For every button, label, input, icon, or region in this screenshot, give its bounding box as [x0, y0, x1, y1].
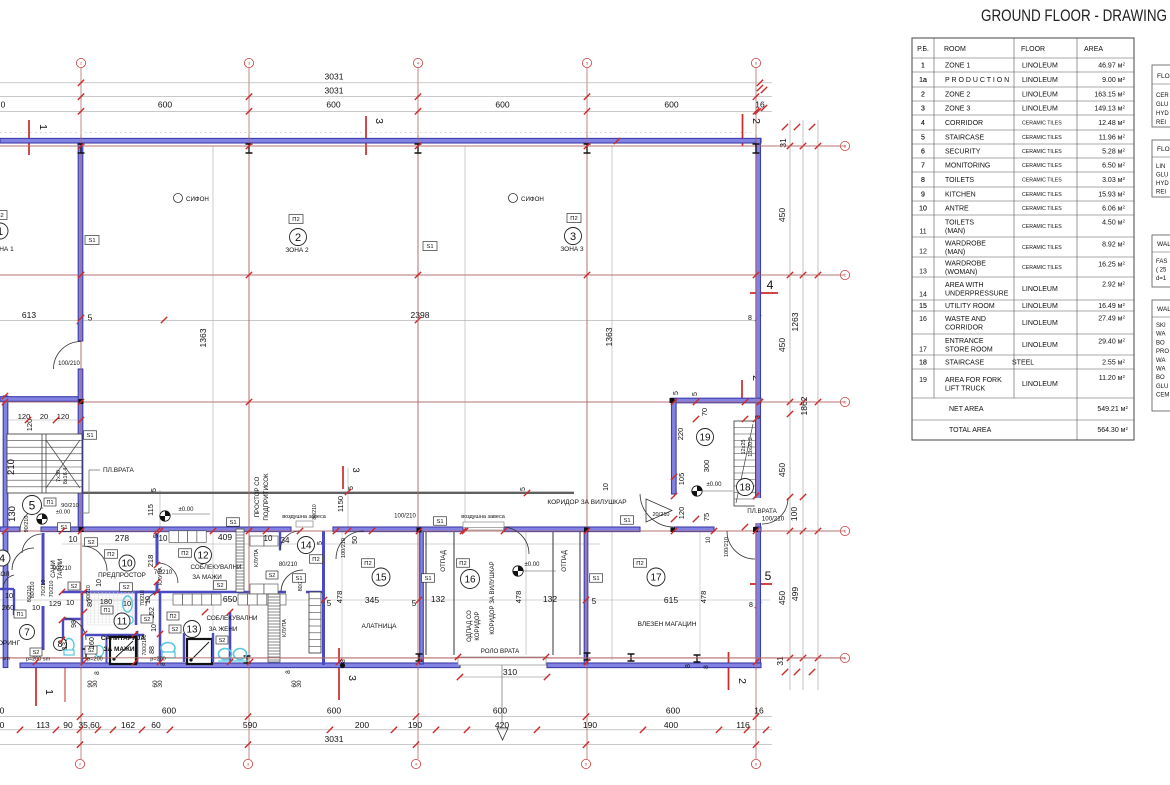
svg-text:100: 100	[789, 507, 799, 521]
svg-text:11.96 м2: 11.96 м2	[1099, 134, 1126, 142]
svg-text:LINOLEUM: LINOLEUM	[1022, 63, 1058, 70]
svg-text:П2: П2	[459, 561, 466, 567]
svg-text:3031: 3031	[325, 734, 344, 744]
svg-text:210: 210	[6, 459, 17, 475]
svg-text:46.97 м2: 46.97 м2	[1098, 62, 1125, 70]
svg-text:16.25 м2: 16.25 м2	[1098, 261, 1125, 269]
svg-text:S1: S1	[623, 518, 630, 524]
svg-text:ВЛЕЗЕН МАГАЦИН: ВЛЕЗЕН МАГАЦИН	[638, 621, 697, 628]
svg-text:478: 478	[335, 591, 344, 604]
svg-text:3031: 3031	[325, 72, 344, 82]
svg-text:1363: 1363	[198, 328, 208, 347]
svg-text:13x20.2: 13x20.2	[748, 437, 754, 457]
svg-text:8.92 м2: 8.92 м2	[1102, 241, 1125, 249]
svg-text:ZONE 3: ZONE 3	[945, 106, 970, 113]
svg-text:70/210: 70/210	[49, 581, 55, 598]
svg-text:S2: S2	[269, 573, 276, 579]
svg-text:5: 5	[412, 599, 417, 608]
svg-text:19: 19	[919, 377, 927, 384]
svg-text:SKI: SKI	[1156, 323, 1166, 329]
svg-text:80/210: 80/210	[312, 504, 318, 520]
svg-text:ПРЕДПРОСТОР: ПРЕДПРОСТОР	[98, 572, 146, 579]
svg-text:8: 8	[94, 671, 101, 675]
svg-text:П2: П2	[0, 213, 4, 219]
svg-text:5: 5	[327, 599, 332, 608]
svg-text:8: 8	[921, 177, 925, 184]
svg-text:12: 12	[919, 249, 927, 256]
svg-text:LINOLEUM: LINOLEUM	[1022, 286, 1058, 293]
svg-text:СОБЛЕКУВАЛНИ: СОБЛЕКУВАЛНИ	[190, 564, 242, 571]
svg-text:3: 3	[570, 231, 576, 243]
svg-text:90/210: 90/210	[86, 585, 92, 601]
svg-text:S2: S2	[216, 583, 223, 589]
svg-text:±0.00: ±0.00	[56, 510, 70, 516]
svg-text:ЗОНА 2: ЗОНА 2	[285, 247, 309, 254]
svg-text:HYD: HYD	[1156, 181, 1169, 187]
svg-text:±0.00: ±0.00	[179, 507, 195, 513]
svg-text:1: 1	[37, 124, 49, 130]
svg-text:CERAMIC TILES: CERAMIC TILES	[1022, 121, 1062, 127]
svg-text:10: 10	[264, 534, 273, 543]
svg-text:0: 0	[0, 706, 5, 716]
svg-text:GLU: GLU	[1156, 173, 1168, 179]
svg-text:10: 10	[603, 483, 610, 491]
svg-text:П2: П2	[107, 552, 114, 558]
svg-text:90/210: 90/210	[61, 503, 79, 509]
svg-text:600: 600	[666, 706, 680, 716]
svg-text:3: 3	[373, 118, 385, 124]
svg-text:34: 34	[281, 536, 290, 545]
svg-text:18: 18	[919, 360, 927, 367]
svg-text:КЛУПА: КЛУПА	[282, 619, 288, 637]
svg-text:СОБЛЕКУВАЛНИ: СОБЛЕКУВАЛНИ	[206, 615, 258, 622]
svg-text:13: 13	[919, 269, 927, 276]
svg-text:КЛУПА: КЛУПА	[158, 567, 164, 585]
svg-text:12.48 м2: 12.48 м2	[1098, 119, 1125, 127]
svg-text:409: 409	[218, 532, 232, 542]
svg-text:10: 10	[121, 559, 133, 570]
svg-text:CORRIDOR: CORRIDOR	[945, 325, 983, 332]
svg-text:10: 10	[145, 596, 152, 604]
svg-text:14: 14	[919, 292, 927, 299]
svg-text:6.50 м2: 6.50 м2	[1102, 162, 1125, 170]
svg-text:129: 129	[49, 599, 62, 608]
svg-text:WA: WA	[1156, 367, 1165, 373]
svg-text:CEM: CEM	[1156, 393, 1169, 399]
svg-text:10: 10	[32, 603, 40, 612]
svg-text:132: 132	[543, 594, 557, 604]
svg-text:11: 11	[117, 617, 128, 628]
svg-text:130: 130	[7, 506, 18, 522]
svg-text:5: 5	[29, 498, 36, 512]
svg-text:ОТПАД: ОТПАД	[561, 549, 568, 571]
svg-text:113: 113	[36, 720, 50, 730]
svg-text:180: 180	[100, 597, 113, 606]
svg-text:650: 650	[223, 594, 237, 604]
svg-text:S2: S2	[122, 585, 129, 591]
svg-text:ПЛ.ВРАТА: ПЛ.ВРАТА	[103, 467, 135, 474]
svg-text:30: 30	[157, 680, 164, 688]
svg-text:S1: S1	[436, 519, 443, 525]
svg-text:7: 7	[921, 163, 925, 170]
svg-text:600: 600	[158, 100, 172, 110]
svg-text:615: 615	[664, 595, 678, 605]
svg-text:300: 300	[702, 460, 711, 473]
svg-text:2: 2	[736, 678, 748, 684]
svg-text:ЗА МАЖИ: ЗА МАЖИ	[192, 574, 222, 581]
svg-text:2: 2	[750, 118, 762, 124]
svg-text:РОЛО ВРАТА: РОЛО ВРАТА	[481, 648, 520, 655]
svg-text:20/210: 20/210	[652, 512, 669, 518]
svg-text:FLOOR: FLOOR	[1021, 46, 1045, 53]
svg-text:ROOM: ROOM	[944, 46, 966, 53]
svg-text:CER: CER	[1156, 93, 1169, 99]
svg-text:AREA FOR FORK: AREA FOR FORK	[945, 377, 1002, 384]
svg-text:29.40 м2: 29.40 м2	[1098, 338, 1125, 346]
svg-text:П2: П2	[636, 561, 643, 567]
svg-text:АЛАТНИЦА: АЛАТНИЦА	[361, 623, 397, 630]
svg-text:KITCHEN: KITCHEN	[945, 192, 976, 199]
svg-text:P R O D U C T I O N: P R O D U C T I O N	[945, 77, 1009, 84]
svg-text:190: 190	[583, 720, 597, 730]
svg-text:CERAMIC TILES: CERAMIC TILES	[1022, 265, 1062, 271]
svg-text:160: 160	[89, 637, 96, 649]
svg-text:TOILETS: TOILETS	[945, 177, 974, 184]
svg-text:2: 2	[921, 92, 925, 99]
svg-text:600: 600	[327, 706, 341, 716]
svg-text:345: 345	[365, 595, 379, 605]
svg-text:5: 5	[151, 488, 158, 492]
svg-text:ТАРИИ: ТАРИИ	[57, 559, 64, 580]
svg-text:88: 88	[149, 646, 156, 654]
svg-text:9.00 м2: 9.00 м2	[1102, 76, 1125, 84]
svg-text:600: 600	[493, 706, 507, 716]
svg-text:478: 478	[699, 591, 708, 604]
svg-text:1: 1	[0, 226, 3, 238]
svg-text:WARDROBE: WARDROBE	[945, 261, 986, 268]
svg-text:WA: WA	[1156, 358, 1165, 364]
svg-text:П2: П2	[570, 216, 577, 222]
svg-text:5: 5	[692, 392, 699, 396]
svg-text:9: 9	[921, 192, 925, 199]
svg-text:5: 5	[592, 597, 597, 606]
svg-text:CORRIDOR: CORRIDOR	[945, 120, 983, 127]
svg-text:8: 8	[749, 602, 753, 609]
svg-text:LIN: LIN	[1156, 164, 1165, 170]
svg-text:16: 16	[755, 100, 765, 110]
svg-text:600: 600	[162, 706, 176, 716]
svg-text:ЗА МАЖИ: ЗА МАЖИ	[103, 646, 135, 653]
svg-text:UTILITY ROOM: UTILITY ROOM	[945, 303, 995, 310]
svg-text:GLU: GLU	[1156, 102, 1168, 108]
svg-text:132: 132	[431, 594, 445, 604]
svg-text:FLO: FLO	[1157, 146, 1170, 153]
svg-text:10: 10	[66, 598, 74, 607]
svg-text:S2: S2	[33, 650, 40, 656]
svg-text:3.03 м2: 3.03 м2	[1102, 176, 1125, 184]
svg-text:478: 478	[514, 591, 523, 604]
svg-text:190: 190	[408, 720, 422, 730]
svg-text:450: 450	[777, 338, 787, 352]
svg-text:LINOLEUM: LINOLEUM	[1022, 342, 1058, 349]
svg-text:S1: S1	[592, 576, 599, 582]
svg-text:5: 5	[88, 313, 93, 323]
svg-text:6.06 м2: 6.06 м2	[1102, 205, 1125, 213]
svg-text:CERAMIC TILES: CERAMIC TILES	[1022, 224, 1062, 230]
svg-text:САНИ: САНИ	[50, 560, 57, 577]
svg-text:6: 6	[921, 149, 925, 156]
svg-text:S1: S1	[295, 576, 302, 582]
svg-text:ЗОНА 3: ЗОНА 3	[560, 246, 584, 253]
svg-text:ЗА ЖЕНИ: ЗА ЖЕНИ	[209, 626, 238, 633]
svg-text:149.13 м2: 149.13 м2	[1094, 105, 1125, 113]
svg-text:LINOLEUM: LINOLEUM	[1022, 92, 1058, 99]
svg-text:GROUND FLOOR - DRAWING: GROUND FLOOR - DRAWING	[981, 6, 1167, 25]
svg-text:П1: П1	[16, 612, 23, 618]
svg-text:ENTRANCE: ENTRANCE	[945, 338, 984, 345]
svg-text:REI: REI	[1156, 190, 1166, 196]
svg-text:CERAMIC TILES: CERAMIC TILES	[1022, 149, 1062, 155]
svg-text:80/210: 80/210	[30, 582, 36, 599]
svg-text:4: 4	[921, 120, 925, 127]
svg-text:10: 10	[706, 536, 712, 543]
svg-text:590: 590	[243, 720, 257, 730]
svg-text:HYD: HYD	[1156, 111, 1169, 117]
svg-text:2: 2	[295, 232, 301, 244]
svg-text:воздушна завеса: воздушна завеса	[282, 514, 327, 520]
svg-text:1363: 1363	[604, 327, 614, 346]
svg-text:CERAMIC TILES: CERAMIC TILES	[1022, 135, 1062, 141]
svg-text:90/210: 90/210	[24, 516, 30, 533]
svg-text:5: 5	[765, 569, 772, 583]
svg-text:5.28 м2: 5.28 м2	[1102, 148, 1125, 156]
svg-text:CERAMIC TILES: CERAMIC TILES	[1022, 245, 1062, 251]
svg-text:p=200: p=200	[87, 657, 102, 663]
svg-text:8: 8	[703, 665, 710, 669]
svg-text:П2: П2	[364, 561, 371, 567]
svg-text:10: 10	[69, 535, 78, 544]
svg-text:1150: 1150	[336, 496, 345, 512]
svg-text:ПРОСТОР СО: ПРОСТОР СО	[254, 476, 261, 517]
svg-text:4: 4	[0, 553, 5, 565]
svg-text:11: 11	[919, 229, 926, 236]
svg-text:NET AREA: NET AREA	[949, 406, 984, 413]
svg-text:СИФОН: СИФОН	[186, 196, 209, 203]
svg-text:САНИТАРИЈА: САНИТАРИЈА	[101, 635, 145, 642]
svg-text:98: 98	[71, 620, 78, 628]
svg-text:8: 8	[340, 659, 347, 663]
svg-text:450: 450	[777, 463, 787, 477]
svg-text:278: 278	[115, 533, 129, 543]
svg-text:S2: S2	[87, 540, 94, 546]
svg-text:CERAMIC TILES: CERAMIC TILES	[1022, 178, 1062, 184]
svg-text:30: 30	[296, 680, 303, 688]
svg-text:(WOMAN): (WOMAN)	[945, 269, 977, 276]
svg-text:СИФОН: СИФОН	[521, 196, 544, 203]
svg-text:S1: S1	[426, 244, 433, 250]
svg-text:воздушна завеса: воздушна завеса	[461, 514, 506, 520]
svg-text:600: 600	[495, 100, 509, 110]
svg-text:LINOLEUM: LINOLEUM	[1022, 381, 1058, 388]
svg-text:±0.00: ±0.00	[525, 562, 541, 568]
svg-text:16: 16	[919, 316, 927, 323]
svg-text:STORE ROOM: STORE ROOM	[945, 347, 993, 354]
svg-text:(MAN): (MAN)	[945, 228, 965, 235]
svg-text:162: 162	[121, 720, 135, 730]
svg-text:105: 105	[677, 473, 686, 486]
svg-text:S2: S2	[172, 627, 179, 633]
svg-text:S1: S1	[88, 238, 95, 244]
svg-text:15.93 м2: 15.93 м2	[1098, 191, 1125, 199]
svg-text:115: 115	[146, 504, 155, 516]
svg-text:3031: 3031	[325, 86, 344, 96]
svg-text:SECURITY: SECURITY	[945, 149, 981, 156]
svg-text:REI: REI	[1156, 120, 1166, 126]
svg-text:100/210: 100/210	[762, 516, 785, 523]
svg-text:260: 260	[2, 603, 15, 612]
svg-text:GLU: GLU	[1156, 384, 1168, 390]
svg-text:3: 3	[350, 467, 361, 472]
svg-text:LINOLEUM: LINOLEUM	[1022, 77, 1058, 84]
svg-text:CERAMIC TILES: CERAMIC TILES	[1022, 163, 1062, 169]
svg-text:LINOLEUM: LINOLEUM	[1022, 106, 1058, 113]
svg-text:ПОДПРИТИСОК: ПОДПРИТИСОК	[263, 473, 270, 521]
svg-text:4: 4	[767, 278, 774, 292]
svg-text:BO: BO	[1156, 375, 1165, 381]
svg-text:WARDROBE: WARDROBE	[945, 241, 986, 248]
svg-text:2.55 м2: 2.55 м2	[1102, 359, 1125, 367]
svg-text:LINOLEUM: LINOLEUM	[1022, 303, 1058, 310]
svg-text:WASTE AND: WASTE AND	[945, 316, 986, 323]
svg-text:8x16.4: 8x16.4	[63, 468, 69, 485]
svg-text:ХОЛ: ХОЛ	[0, 571, 10, 578]
svg-text:564.30 м2: 564.30 м2	[1097, 426, 1128, 434]
svg-text:30: 30	[92, 680, 99, 688]
svg-text:WAL: WAL	[1157, 241, 1170, 248]
svg-text:8: 8	[685, 664, 692, 668]
svg-text:200: 200	[355, 720, 369, 730]
svg-text:100/210: 100/210	[394, 514, 416, 520]
svg-text:S1: S1	[229, 520, 236, 526]
svg-text:КОРИДОР ЗА ВИЛУШКАР: КОРИДОР ЗА ВИЛУШКАР	[547, 499, 626, 506]
svg-text:10: 10	[5, 591, 13, 600]
svg-text:20: 20	[40, 412, 48, 421]
svg-text:8: 8	[748, 315, 752, 322]
svg-text:PRO: PRO	[1156, 349, 1169, 355]
svg-text:90: 90	[63, 720, 73, 730]
svg-text:ОТПАД: ОТПАД	[440, 549, 447, 571]
svg-text:ОДПАД СО: ОДПАД СО	[467, 610, 473, 642]
svg-text:d=1: d=1	[1156, 276, 1167, 282]
svg-text:450: 450	[777, 208, 787, 222]
svg-text:600: 600	[664, 100, 678, 110]
svg-text:10: 10	[159, 534, 168, 543]
svg-text:FLO: FLO	[1157, 73, 1170, 80]
svg-text:8: 8	[160, 662, 167, 666]
svg-text:КОРИДОР: КОРИДОР	[475, 611, 481, 640]
svg-text:П2: П2	[181, 551, 188, 557]
svg-text:499: 499	[790, 587, 800, 601]
svg-text:14: 14	[300, 541, 312, 552]
svg-text:ОРИНГ: ОРИНГ	[0, 640, 21, 647]
svg-text:70: 70	[700, 408, 709, 416]
svg-text:( 25: ( 25	[1156, 268, 1167, 274]
svg-text:218: 218	[146, 555, 155, 568]
svg-text:0: 0	[1, 100, 6, 110]
svg-text:60: 60	[151, 720, 161, 730]
svg-text:S2: S2	[71, 584, 78, 590]
svg-text:STAIRCASE: STAIRCASE	[945, 135, 984, 142]
svg-text:(MAN): (MAN)	[945, 249, 965, 256]
svg-text:310: 310	[503, 667, 517, 677]
svg-text:S1: S1	[424, 576, 431, 582]
svg-text:27.49 м2: 27.49 м2	[1098, 315, 1125, 323]
svg-text:ZONE 1: ZONE 1	[945, 63, 970, 70]
svg-text:MONITORING: MONITORING	[945, 163, 990, 170]
svg-text:17: 17	[919, 347, 927, 354]
svg-text:П1: П1	[46, 500, 53, 506]
svg-text:15: 15	[375, 573, 387, 584]
svg-text:S2: S2	[219, 638, 226, 644]
svg-text:10: 10	[96, 579, 103, 587]
svg-text:CERAMIC TILES: CERAMIC TILES	[1022, 206, 1062, 212]
svg-text:1263: 1263	[790, 312, 800, 331]
svg-text:5: 5	[317, 541, 324, 545]
svg-text:7: 7	[24, 628, 30, 639]
svg-text:100/210: 100/210	[724, 537, 730, 557]
svg-text:3: 3	[346, 675, 358, 681]
svg-text:sm: sm	[2, 656, 10, 662]
svg-text:WAL: WAL	[1157, 306, 1170, 313]
svg-text:0: 0	[0, 720, 5, 730]
svg-text:TOILETS: TOILETS	[945, 220, 974, 227]
svg-text:17: 17	[650, 573, 662, 584]
svg-text:П2: П2	[312, 557, 319, 563]
svg-text:450: 450	[777, 591, 787, 605]
svg-text:П2: П2	[169, 614, 176, 620]
svg-text:12x25: 12x25	[741, 440, 747, 455]
svg-text:КОРИДОР ЗА ВИЛУШКАР: КОРИДОР ЗА ВИЛУШКАР	[490, 561, 496, 634]
svg-text:10: 10	[123, 599, 131, 608]
svg-text:16: 16	[754, 706, 764, 716]
svg-text:1a: 1a	[919, 77, 927, 84]
svg-text:КЛУПА: КЛУПА	[254, 549, 260, 567]
svg-text:70/210: 70/210	[41, 580, 47, 597]
svg-text:±0.00: ±0.00	[707, 482, 723, 488]
svg-text:ZONE 2: ZONE 2	[945, 92, 970, 99]
svg-text:163.15 м2: 163.15 м2	[1094, 91, 1125, 99]
svg-text:STAIRCASE: STAIRCASE	[945, 360, 984, 367]
svg-text:ЗОНА 1: ЗОНА 1	[0, 246, 14, 253]
svg-text:7x30: 7x30	[56, 470, 62, 482]
svg-text:ПЛ.ВРАТА: ПЛ.ВРАТА	[747, 508, 777, 515]
svg-text:AREA: AREA	[1084, 46, 1103, 53]
svg-text:2.92 м2: 2.92 м2	[1102, 281, 1125, 289]
svg-text:10: 10	[151, 624, 158, 632]
svg-text:Р.Б.: Р.Б.	[917, 46, 929, 53]
svg-text:LIFT TRUCK: LIFT TRUCK	[945, 386, 986, 393]
svg-text:AREA WITH: AREA WITH	[945, 282, 984, 289]
svg-text:12: 12	[197, 551, 209, 562]
svg-text:600: 600	[326, 100, 340, 110]
svg-text:100/210: 100/210	[341, 538, 347, 558]
svg-text:LINOLEUM: LINOLEUM	[1022, 320, 1058, 327]
svg-text:5: 5	[520, 487, 527, 491]
svg-text:19: 19	[699, 433, 711, 444]
svg-text:400: 400	[664, 720, 678, 730]
svg-text:100/210: 100/210	[58, 361, 80, 367]
svg-text:BO: BO	[1156, 340, 1165, 346]
